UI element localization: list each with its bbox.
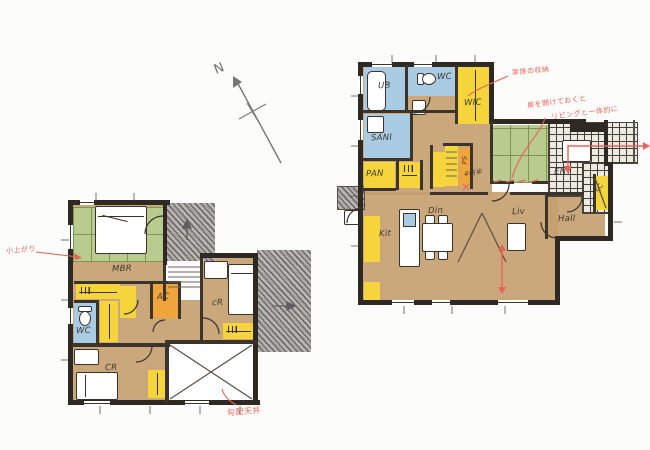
wall-int [492, 181, 514, 184]
window [358, 76, 363, 94]
wall-int [362, 158, 411, 161]
wall-int [74, 300, 99, 303]
wall [608, 162, 613, 241]
f1-floor-ldk [362, 192, 558, 302]
wall-thin [633, 120, 635, 164]
room-label-wic: WIC [464, 98, 482, 109]
wall-int [545, 192, 548, 239]
dining-table [422, 223, 453, 252]
dining-chair [425, 251, 435, 260]
dining-chair [438, 251, 448, 260]
cr-right-bed [228, 264, 256, 315]
cr-right-desk [204, 261, 228, 279]
window [68, 225, 73, 249]
wall [163, 203, 167, 265]
wall-int [410, 112, 413, 161]
wall-int [593, 174, 596, 212]
wall-int [96, 300, 99, 345]
dining-chair [425, 215, 435, 224]
wall [555, 236, 613, 241]
toilet-bowl-1f [422, 73, 436, 85]
room-label-mbr: MBR [112, 264, 132, 275]
wall-int [178, 281, 181, 319]
f1-entry-canopy-wall [570, 123, 607, 132]
wall-int [532, 181, 548, 184]
window [414, 62, 432, 67]
mbr-bed [95, 206, 147, 254]
f2-closet-cr-bottom [148, 370, 165, 398]
wall-int [548, 192, 584, 195]
wall-int [443, 143, 473, 146]
wall-int [430, 145, 433, 189]
room-label-ac: AC [157, 292, 170, 302]
wall [358, 62, 363, 305]
f2-closet-hall [100, 301, 118, 342]
f1-room-wic [458, 67, 492, 124]
room-label-sani: SANI [371, 133, 393, 144]
room-label-cr-bottom: CR [105, 363, 118, 373]
room-label-din: Din [428, 206, 444, 217]
room-label-hall: Hall [558, 214, 576, 225]
wall [489, 62, 494, 124]
living-sofa [507, 223, 526, 251]
window [372, 62, 392, 67]
wall [555, 236, 560, 305]
window [392, 300, 414, 305]
window [68, 308, 73, 324]
f1-entry-step [562, 140, 591, 162]
kitchen-sink [403, 213, 416, 227]
room-label-ub: UB [378, 81, 391, 91]
wall-int [150, 281, 153, 319]
room-label-pan: PAN [366, 169, 384, 180]
window [84, 401, 110, 406]
room-label-liv: Liv [512, 207, 525, 217]
f1-stairs [445, 146, 458, 186]
window [498, 300, 528, 305]
room-label-cr-right: cR [212, 298, 224, 308]
floorplan-canvas: UB WC WIC SANI PAN PS 4帖半 ENT Hall SC Li… [0, 0, 650, 450]
wall-int [165, 340, 257, 344]
dining-chair [438, 215, 448, 224]
f2-void [169, 344, 253, 400]
window [185, 401, 209, 406]
north-label: N [212, 60, 227, 78]
f1-kitchen-counter-2 [364, 282, 380, 300]
f2-closet-mbr [76, 284, 120, 299]
f2-closet-mid [120, 286, 136, 318]
wall-int [420, 160, 423, 190]
room-label-ent: ENT [554, 167, 572, 178]
cr-bottom-bed [76, 372, 118, 400]
wall-int [490, 122, 493, 184]
f2-roof-hatch-right [257, 250, 311, 352]
room-label-wc-1f: WC [437, 72, 452, 83]
f1-closet-stair [433, 152, 445, 187]
note-family-storage: 家族の収納 [512, 64, 550, 77]
note-sloped-ceiling: 勾配天井 [227, 405, 262, 419]
room-label-kit: Kit [379, 229, 392, 239]
wall-int [72, 343, 170, 347]
note-koagari: 小上がり [6, 244, 37, 257]
room-label-ps: PS [460, 156, 468, 165]
f1-tatami-room [492, 125, 548, 183]
room-label-wc-2f: WC [76, 326, 91, 337]
window [432, 300, 450, 305]
wall-int [165, 343, 169, 403]
wall-int [362, 188, 396, 191]
wall-int [510, 192, 545, 195]
wall-int [430, 192, 488, 195]
wall [490, 119, 586, 124]
wall [358, 300, 560, 305]
f1-closet-hall [399, 162, 420, 188]
wall [200, 253, 258, 258]
wall-int [455, 65, 458, 124]
wall-int [405, 65, 408, 113]
washing-machine [367, 116, 384, 133]
north-arrow-icon: N [212, 60, 281, 163]
window [358, 120, 363, 140]
window [80, 200, 94, 205]
toilet-bowl-2f [79, 311, 91, 326]
wall [604, 120, 608, 166]
wall-int [200, 258, 203, 343]
wall-int [396, 160, 399, 190]
f2-closet-cr-right [223, 323, 254, 339]
wall [253, 253, 258, 404]
cr-bottom-shelf [74, 349, 99, 365]
f1-kitchen-counter [364, 216, 380, 262]
